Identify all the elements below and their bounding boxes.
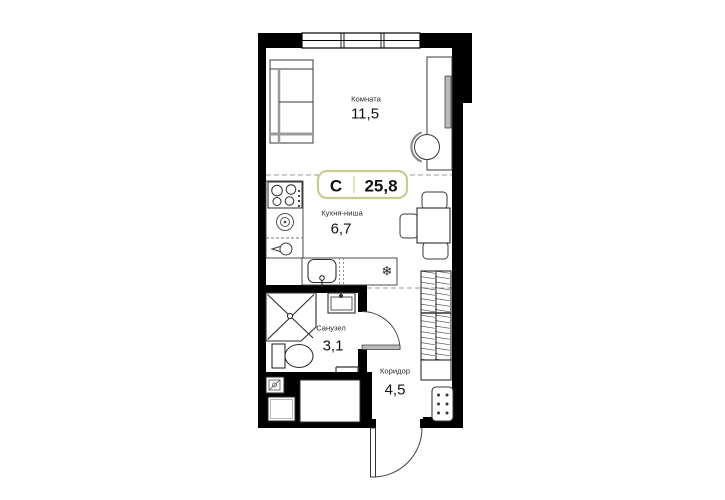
corridor-name-label: Коридор [380,367,410,376]
plan-badge: С 25,8 [318,171,407,198]
living-room-area-label: 11,5 [351,106,379,123]
shoe-cabinet [432,387,453,421]
apartment-type-label: С [330,177,342,196]
total-area-label: 25,8 [364,177,397,196]
bathroom-area-label: 3,1 [323,338,344,355]
towel-rail [336,367,358,372]
fridge-symbol: ❄ [382,265,393,280]
kitchen-name-label: Кухня-ниша [321,209,363,218]
bathroom-door-leaf [362,345,400,350]
entrance-door [371,428,423,477]
washbasin [328,292,355,314]
tv-panel [445,76,451,128]
washing-machine-niche [268,397,295,421]
toilet [272,344,313,368]
shower [266,293,316,341]
wardrobe-shelves [421,271,451,380]
vent-shaft [266,377,284,393]
entrance-door-leaf [371,428,376,477]
storage-niche [300,380,360,422]
floor-plan-canvas: ❄ [0,0,725,500]
bathroom-door [362,312,400,350]
living-room-name-label: Комната [351,95,382,104]
window [302,33,420,48]
kitchen-area-label: 6,7 [331,221,352,238]
stove [268,182,302,208]
floor-plan: ❄ [0,0,725,500]
dining-table [417,208,450,243]
bathroom-name-label: Санузел [316,324,346,333]
sofa [270,60,313,143]
corridor-area-label: 4,5 [385,382,406,399]
